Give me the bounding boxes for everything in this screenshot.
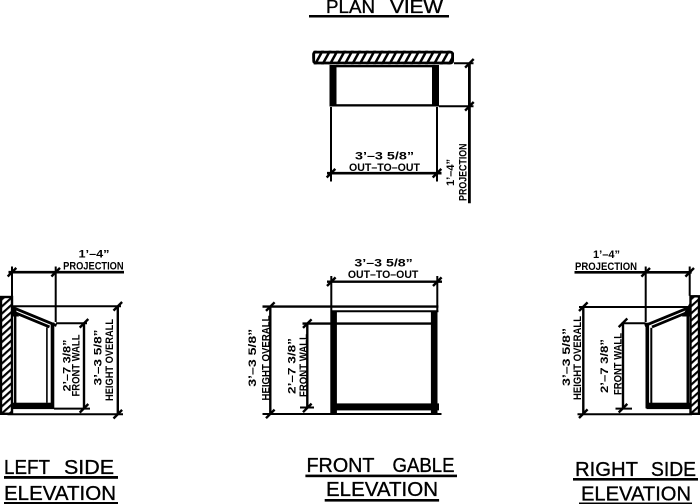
svg-text:PLAN: PLAN (326, 0, 375, 17)
svg-text:3’–3 5/8”: 3’–3 5/8” (354, 257, 412, 269)
svg-text:1’–4”: 1’–4” (445, 159, 457, 186)
svg-text:3’–3 5/8”: 3’–3 5/8” (247, 329, 259, 387)
svg-text:RIGHT: RIGHT (575, 458, 638, 481)
svg-text:PROJECTION: PROJECTION (63, 260, 124, 272)
svg-text:FRONT WALL: FRONT WALL (70, 334, 82, 396)
svg-text:3’–3 5/8”: 3’–3 5/8” (355, 151, 414, 163)
svg-text:HEIGHT OVERALL: HEIGHT OVERALL (572, 316, 584, 400)
svg-text:2’–7 3/8”: 2’–7 3/8” (599, 339, 611, 393)
svg-text:2’–7 3/8”: 2’–7 3/8” (286, 338, 298, 394)
svg-text:SIDE: SIDE (64, 456, 114, 479)
svg-text:1’–4”: 1’–4” (593, 249, 620, 261)
svg-text:ELEVATION: ELEVATION (581, 483, 691, 504)
svg-text:OUT–TO–OUT: OUT–TO–OUT (348, 269, 419, 281)
svg-text:PROJECTION: PROJECTION (575, 261, 637, 273)
svg-text:GABLE: GABLE (393, 454, 455, 477)
svg-text:OUT–TO–OUT: OUT–TO–OUT (349, 162, 420, 174)
svg-text:PROJECTION: PROJECTION (458, 143, 470, 201)
svg-text:FRONT WALL: FRONT WALL (612, 333, 624, 395)
svg-text:HEIGHT OVERALL: HEIGHT OVERALL (261, 315, 273, 400)
svg-text:VIEW: VIEW (390, 0, 443, 17)
svg-text:LEFT: LEFT (4, 456, 50, 479)
svg-text:FRONT WALL: FRONT WALL (298, 334, 310, 397)
svg-text:HEIGHT OVERALL: HEIGHT OVERALL (104, 319, 116, 401)
svg-text:ELEVATION: ELEVATION (4, 482, 116, 504)
svg-text:ELEVATION: ELEVATION (326, 478, 438, 501)
svg-text:1’–4”: 1’–4” (79, 249, 110, 261)
svg-text:SIDE: SIDE (651, 458, 696, 481)
svg-text:FRONT: FRONT (307, 454, 375, 477)
svg-text:3’–3 5/8”: 3’–3 5/8” (93, 330, 105, 386)
